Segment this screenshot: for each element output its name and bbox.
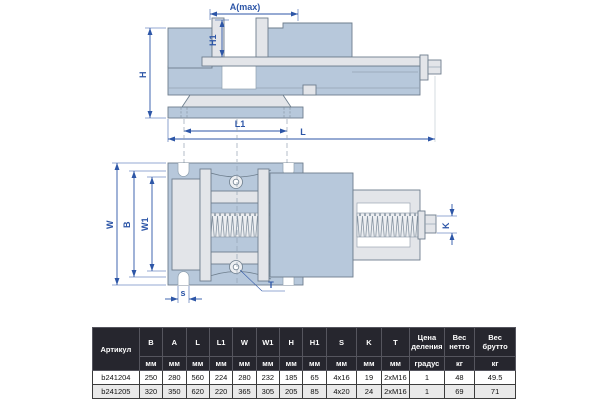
col-header-h1: H1 bbox=[303, 328, 326, 357]
dimension-label-h: H bbox=[138, 72, 148, 79]
col-header-h: H bbox=[280, 328, 303, 357]
col-header-w1: W1 bbox=[256, 328, 279, 357]
technical-drawing: A(max) H1 H L1 L bbox=[0, 0, 600, 325]
table-cell: 305 bbox=[256, 385, 279, 399]
unit-cell: мм bbox=[381, 357, 409, 371]
unit-cell: мм bbox=[233, 357, 256, 371]
unit-cell: кг bbox=[444, 357, 475, 371]
side-view: A(max) H1 H L1 L bbox=[138, 2, 441, 176]
table-cell: 19 bbox=[357, 371, 381, 385]
dimension-label-t: T bbox=[268, 280, 274, 290]
table-cell: 49.5 bbox=[475, 371, 516, 385]
mounting-slot bbox=[178, 163, 189, 177]
unit-cell: мм bbox=[303, 357, 326, 371]
vise-bed bbox=[168, 66, 420, 95]
dimension-label-s: s bbox=[180, 288, 185, 298]
table-cell: 69 bbox=[444, 385, 475, 399]
table-cell: 224 bbox=[209, 371, 232, 385]
table-cell: 71 bbox=[475, 385, 516, 399]
table-cell: 620 bbox=[186, 385, 209, 399]
slide-bar bbox=[202, 57, 420, 66]
table-cell: 250 bbox=[139, 371, 162, 385]
table-cell: 1 bbox=[410, 371, 445, 385]
unit-cell: мм bbox=[357, 357, 381, 371]
movable-jaw bbox=[267, 23, 352, 57]
screw-end-cap bbox=[418, 211, 425, 239]
bed-opening bbox=[222, 66, 256, 89]
article-cell: b241204 bbox=[93, 371, 140, 385]
slide-rail bbox=[258, 169, 269, 281]
top-view: W B W1 s K T bbox=[105, 163, 457, 303]
table-cell: 2xM16 bbox=[381, 385, 409, 399]
dimension-label-b: B bbox=[122, 221, 132, 228]
table-cell: 280 bbox=[233, 371, 256, 385]
unit-cell: градус bbox=[410, 357, 445, 371]
col-header-s: S bbox=[326, 328, 357, 357]
col-header-gross-weight: Вес брутто bbox=[475, 328, 516, 357]
table-cell: 232 bbox=[256, 371, 279, 385]
clamp-hole bbox=[230, 176, 243, 189]
dimension-label-h1: H1 bbox=[208, 34, 218, 46]
dimension-label-k: K bbox=[441, 222, 451, 229]
col-header-l: L bbox=[186, 328, 209, 357]
clamp-hole bbox=[230, 261, 243, 274]
table-cell: 280 bbox=[163, 371, 186, 385]
table-cell: 48 bbox=[444, 371, 475, 385]
article-cell: b241205 bbox=[93, 385, 140, 399]
dimension-label-w1: W1 bbox=[140, 218, 150, 232]
table-cell: 185 bbox=[280, 371, 303, 385]
dimension-label-a-max: A(max) bbox=[230, 2, 261, 12]
jaw-plate-movable bbox=[256, 18, 268, 57]
fixed-jaw-top bbox=[172, 179, 200, 270]
table-cell: 24 bbox=[357, 385, 381, 399]
table-units-row: мм мм мм мм мм мм мм мм мм мм мм градус … bbox=[93, 357, 516, 371]
col-header-w: W bbox=[233, 328, 256, 357]
slide-rail bbox=[200, 169, 211, 281]
col-header-l1: L1 bbox=[209, 328, 232, 357]
lock-nut bbox=[303, 85, 316, 95]
unit-cell: мм bbox=[186, 357, 209, 371]
dimension-label-l1: L1 bbox=[235, 119, 246, 129]
table-cell: 205 bbox=[280, 385, 303, 399]
table-cell: 1 bbox=[410, 385, 445, 399]
col-header-b: B bbox=[139, 328, 162, 357]
movable-jaw-carriage bbox=[270, 173, 353, 277]
lead-screw bbox=[357, 213, 418, 237]
screw-end-cap bbox=[420, 55, 428, 80]
col-header-k: K bbox=[357, 328, 381, 357]
mounting-slot bbox=[178, 272, 189, 286]
col-header-net-weight: Вес нетто bbox=[444, 328, 475, 357]
unit-cell: мм bbox=[256, 357, 279, 371]
unit-cell: мм bbox=[280, 357, 303, 371]
base-plate bbox=[168, 107, 303, 118]
col-header-article: Артикул bbox=[93, 328, 140, 371]
table-row: b241205 320 350 620 220 365 305 205 85 4… bbox=[93, 385, 516, 399]
col-header-scale: Цена деления bbox=[410, 328, 445, 357]
table-cell: 85 bbox=[303, 385, 326, 399]
table-header-row: Артикул B A L L1 W W1 H H1 S K T Цена де… bbox=[93, 328, 516, 357]
table-cell: 4x16 bbox=[326, 371, 357, 385]
unit-cell: мм bbox=[139, 357, 162, 371]
table-cell: 365 bbox=[233, 385, 256, 399]
table-cell: 220 bbox=[209, 385, 232, 399]
unit-cell: кг bbox=[475, 357, 516, 371]
table-cell: 65 bbox=[303, 371, 326, 385]
catalog-page: A(max) H1 H L1 L bbox=[0, 0, 600, 400]
unit-cell: мм bbox=[163, 357, 186, 371]
table-cell: 2xM16 bbox=[381, 371, 409, 385]
col-header-t: T bbox=[381, 328, 409, 357]
swivel-base bbox=[182, 95, 291, 107]
table-cell: 4x20 bbox=[326, 385, 357, 399]
spec-table: Артикул B A L L1 W W1 H H1 S K T Цена де… bbox=[92, 327, 516, 399]
dimension-label-w: W bbox=[105, 220, 115, 229]
table-row: b241204 250 280 560 224 280 232 185 65 4… bbox=[93, 371, 516, 385]
col-header-a: A bbox=[163, 328, 186, 357]
dimension-label-l: L bbox=[300, 127, 306, 137]
unit-cell: мм bbox=[326, 357, 357, 371]
table-cell: 350 bbox=[163, 385, 186, 399]
table-cell: 560 bbox=[186, 371, 209, 385]
table-cell: 320 bbox=[139, 385, 162, 399]
unit-cell: мм bbox=[209, 357, 232, 371]
